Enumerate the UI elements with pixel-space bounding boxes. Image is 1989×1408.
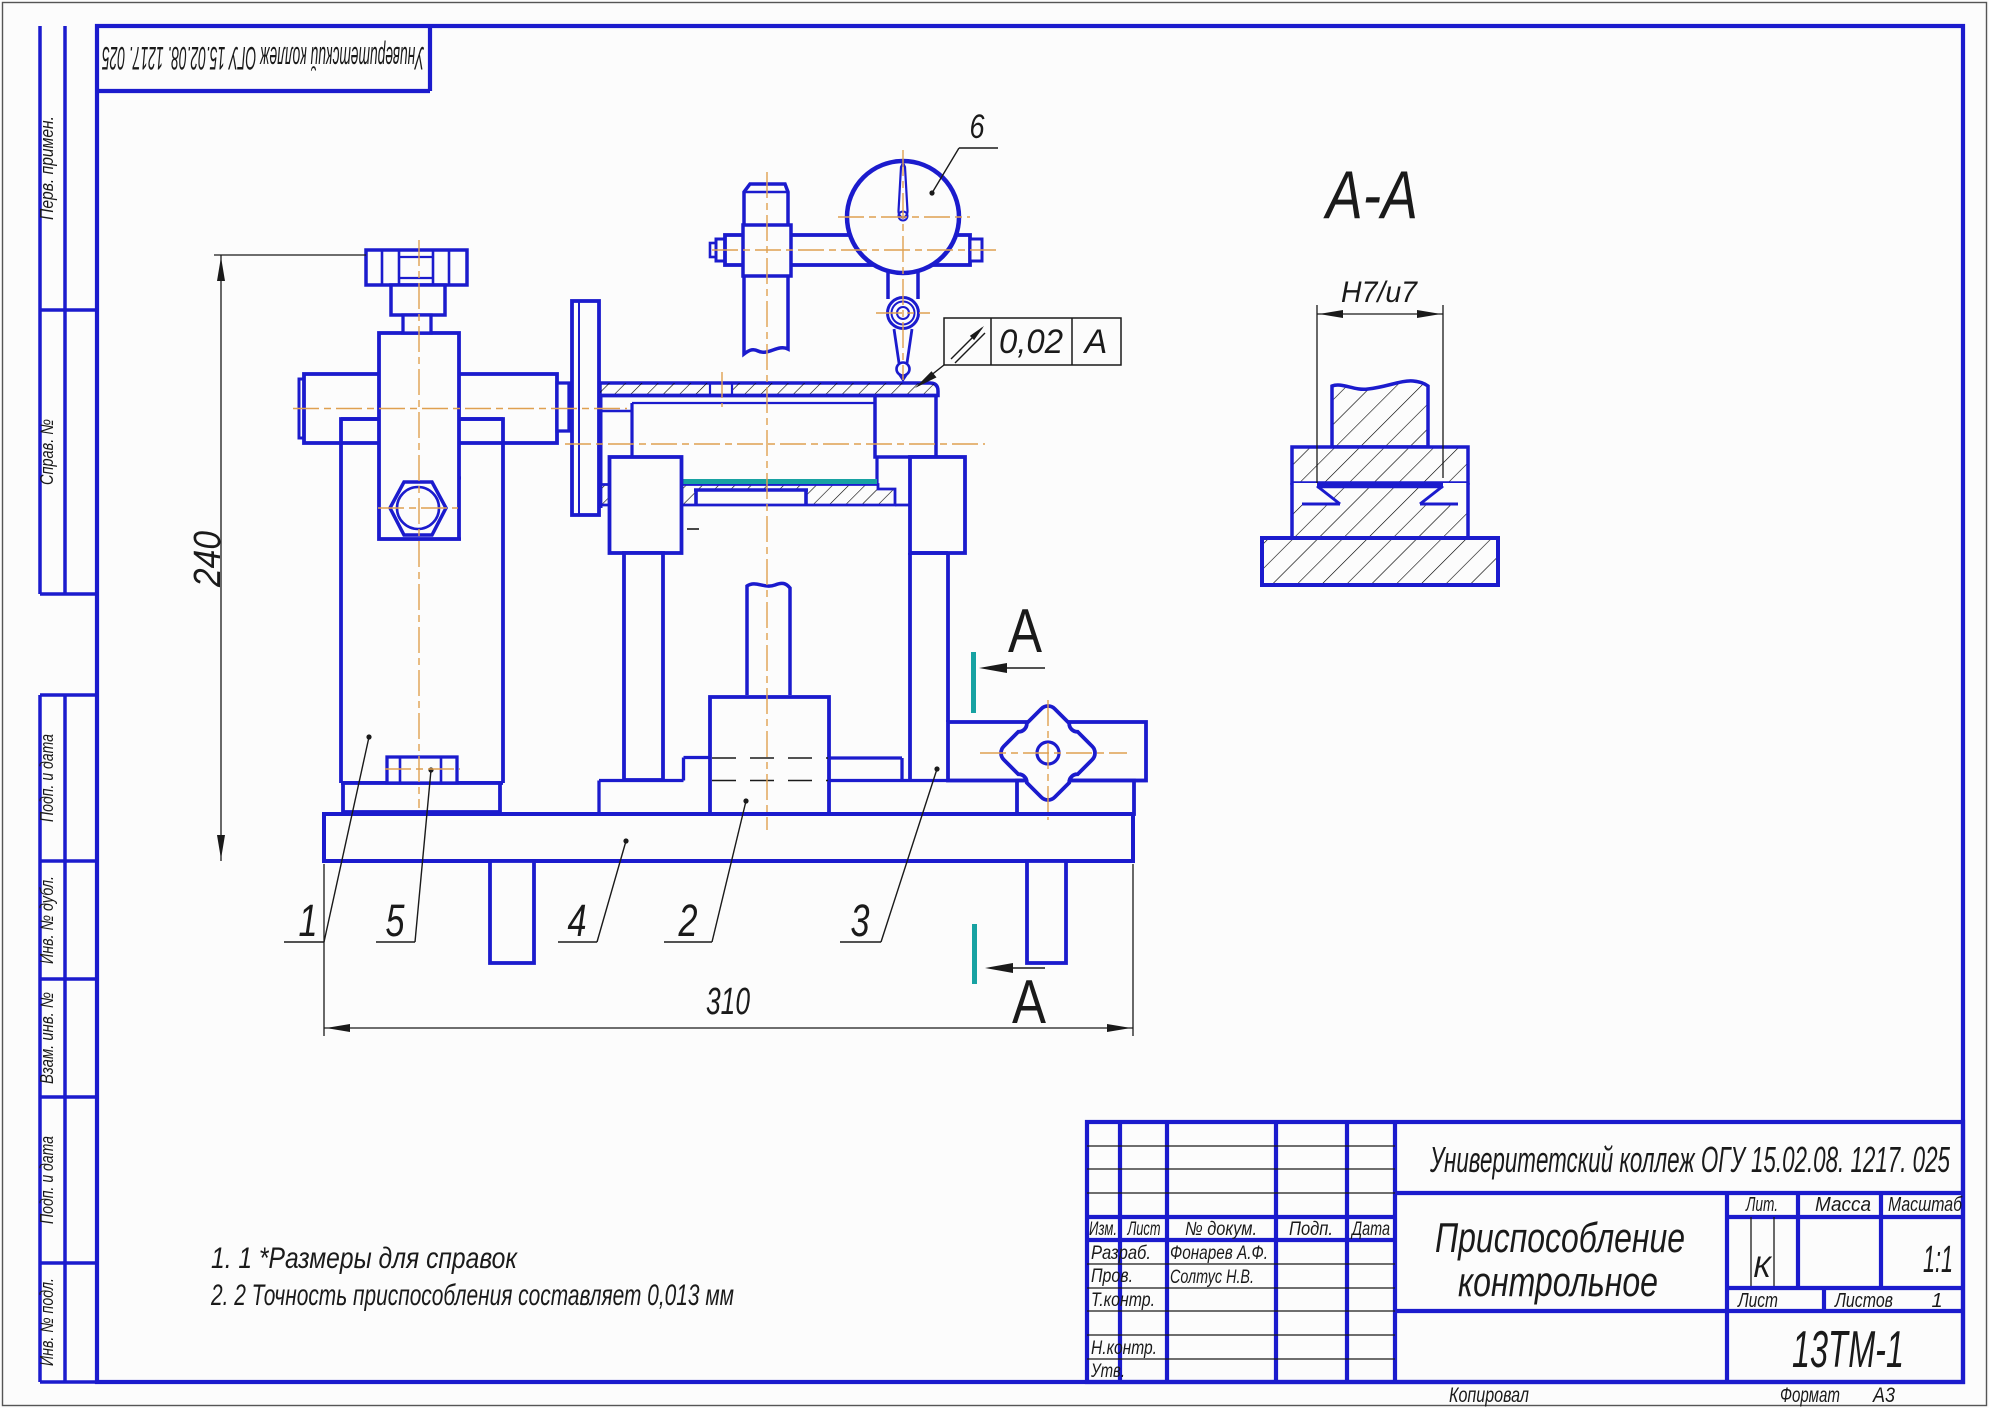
svg-text:1. 1 *Размеры для справок: 1. 1 *Размеры для справок	[211, 1242, 518, 1275]
svg-text:Формат: Формат	[1780, 1384, 1840, 1407]
svg-text:Масса: Масса	[1815, 1194, 1871, 1216]
svg-text:Универитетский коллеж ОГУ 15.0: Универитетский коллеж ОГУ 15.02.08. 1217…	[102, 40, 425, 76]
svg-text:1: 1	[299, 895, 318, 946]
svg-text:Листов: Листов	[1833, 1290, 1893, 1312]
svg-text:К: К	[1753, 1251, 1773, 1284]
svg-text:А-А: А-А	[1323, 157, 1418, 233]
svg-text:Справ. №: Справ. №	[37, 419, 57, 485]
svg-text:4: 4	[568, 895, 587, 946]
svg-text:Лист: Лист	[1126, 1219, 1160, 1240]
svg-text:1: 1	[1931, 1290, 1942, 1312]
svg-text:Подп. и дата: Подп. и дата	[37, 1136, 57, 1224]
svg-text:Солтус Н.В.: Солтус Н.В.	[1170, 1267, 1254, 1288]
svg-text:Т.контр.: Т.контр.	[1091, 1290, 1155, 1311]
svg-text:240: 240	[187, 531, 229, 588]
svg-text:А: А	[1008, 597, 1043, 666]
svg-text:Изм.: Изм.	[1089, 1219, 1117, 1240]
svg-text:Инв. № подл.: Инв. № подл.	[37, 1278, 57, 1366]
svg-text:А3: А3	[1871, 1384, 1895, 1407]
svg-text:Взам. инв. №: Взам. инв. №	[37, 992, 57, 1084]
svg-text:6: 6	[970, 108, 985, 146]
svg-text:5: 5	[386, 895, 406, 946]
svg-text:контрольное: контрольное	[1458, 1258, 1658, 1305]
svg-text:Приспособление: Приспособление	[1435, 1214, 1685, 1261]
svg-text:№ докум.: № докум.	[1185, 1219, 1257, 1240]
svg-text:Разраб.: Разраб.	[1091, 1243, 1151, 1264]
svg-text:Лист: Лист	[1736, 1290, 1778, 1312]
svg-text:А: А	[1083, 323, 1108, 361]
svg-text:Пров.: Пров.	[1091, 1266, 1133, 1287]
svg-text:Лит.: Лит.	[1745, 1194, 1778, 1216]
svg-text:Н.контр.: Н.контр.	[1091, 1338, 1157, 1359]
svg-text:Перв. примен.: Перв. примен.	[37, 116, 57, 220]
svg-text:Инв. № дубл.: Инв. № дубл.	[37, 876, 57, 964]
svg-text:Копировал: Копировал	[1449, 1384, 1529, 1407]
svg-text:13ТМ-1: 13ТМ-1	[1792, 1321, 1904, 1379]
svg-text:Универитетский коллеж ОГУ 15.0: Универитетский коллеж ОГУ 15.02.08. 1217…	[1429, 1139, 1950, 1180]
svg-text:3: 3	[851, 895, 870, 946]
svg-text:Дата: Дата	[1350, 1219, 1390, 1240]
svg-text:H7/u7: H7/u7	[1341, 276, 1418, 309]
svg-text:0,02: 0,02	[999, 323, 1063, 361]
svg-text:2. 2 Точность приспособления с: 2. 2 Точность приспособления составляет …	[210, 1279, 734, 1312]
svg-text:Фонарев А.Ф.: Фонарев А.Ф.	[1170, 1243, 1268, 1264]
svg-text:Подп.: Подп.	[1289, 1219, 1333, 1240]
svg-text:Масштаб: Масштаб	[1888, 1194, 1963, 1216]
svg-text:2: 2	[678, 895, 698, 946]
svg-text:А: А	[1012, 968, 1047, 1037]
svg-text:310: 310	[706, 981, 750, 1023]
svg-text:1:1: 1:1	[1923, 1239, 1953, 1281]
svg-text:Подп. и дата: Подп. и дата	[37, 734, 57, 822]
svg-text:Утв.: Утв.	[1090, 1361, 1125, 1382]
